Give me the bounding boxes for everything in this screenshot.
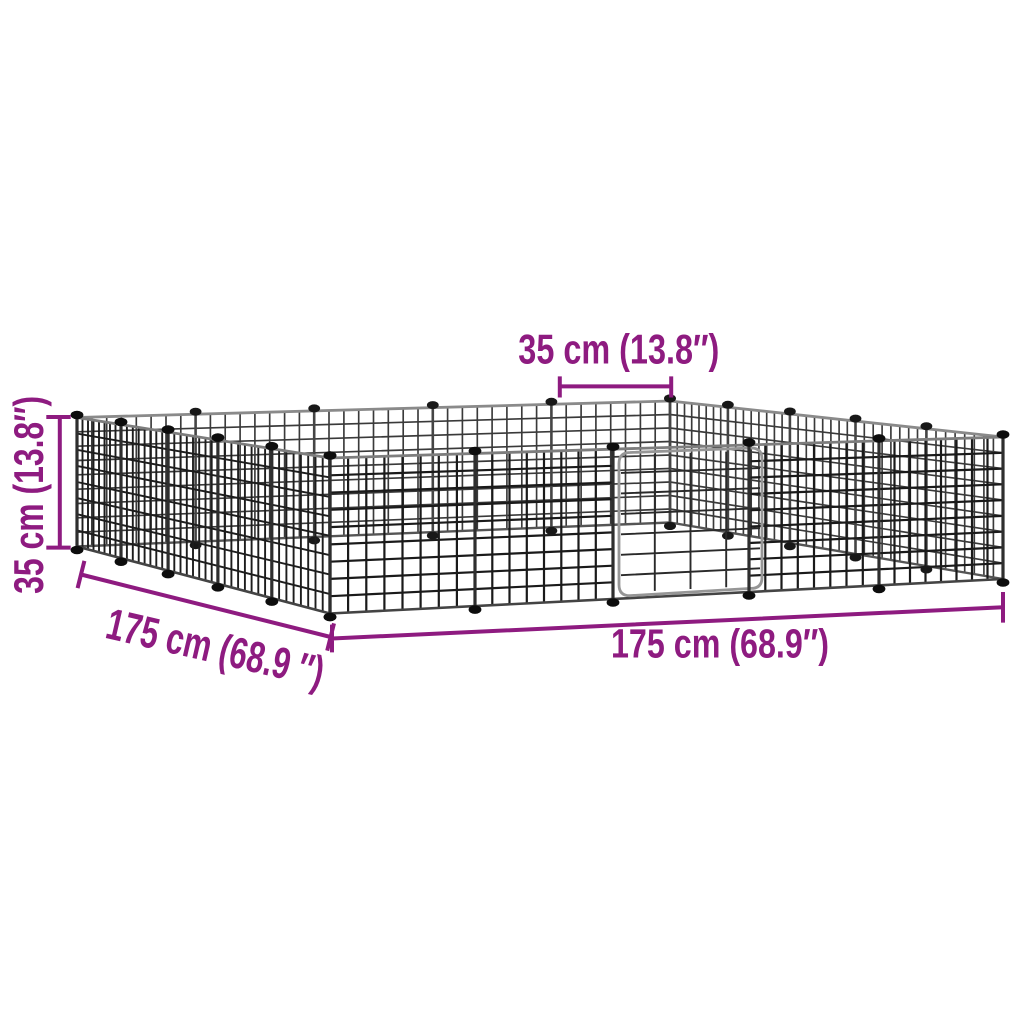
svg-text:175 cm (68.9″): 175 cm (68.9″) bbox=[611, 620, 829, 666]
svg-text:35 cm (13.8″): 35 cm (13.8″) bbox=[518, 326, 719, 373]
svg-text:35 cm (13.8″): 35 cm (13.8″) bbox=[5, 396, 52, 594]
